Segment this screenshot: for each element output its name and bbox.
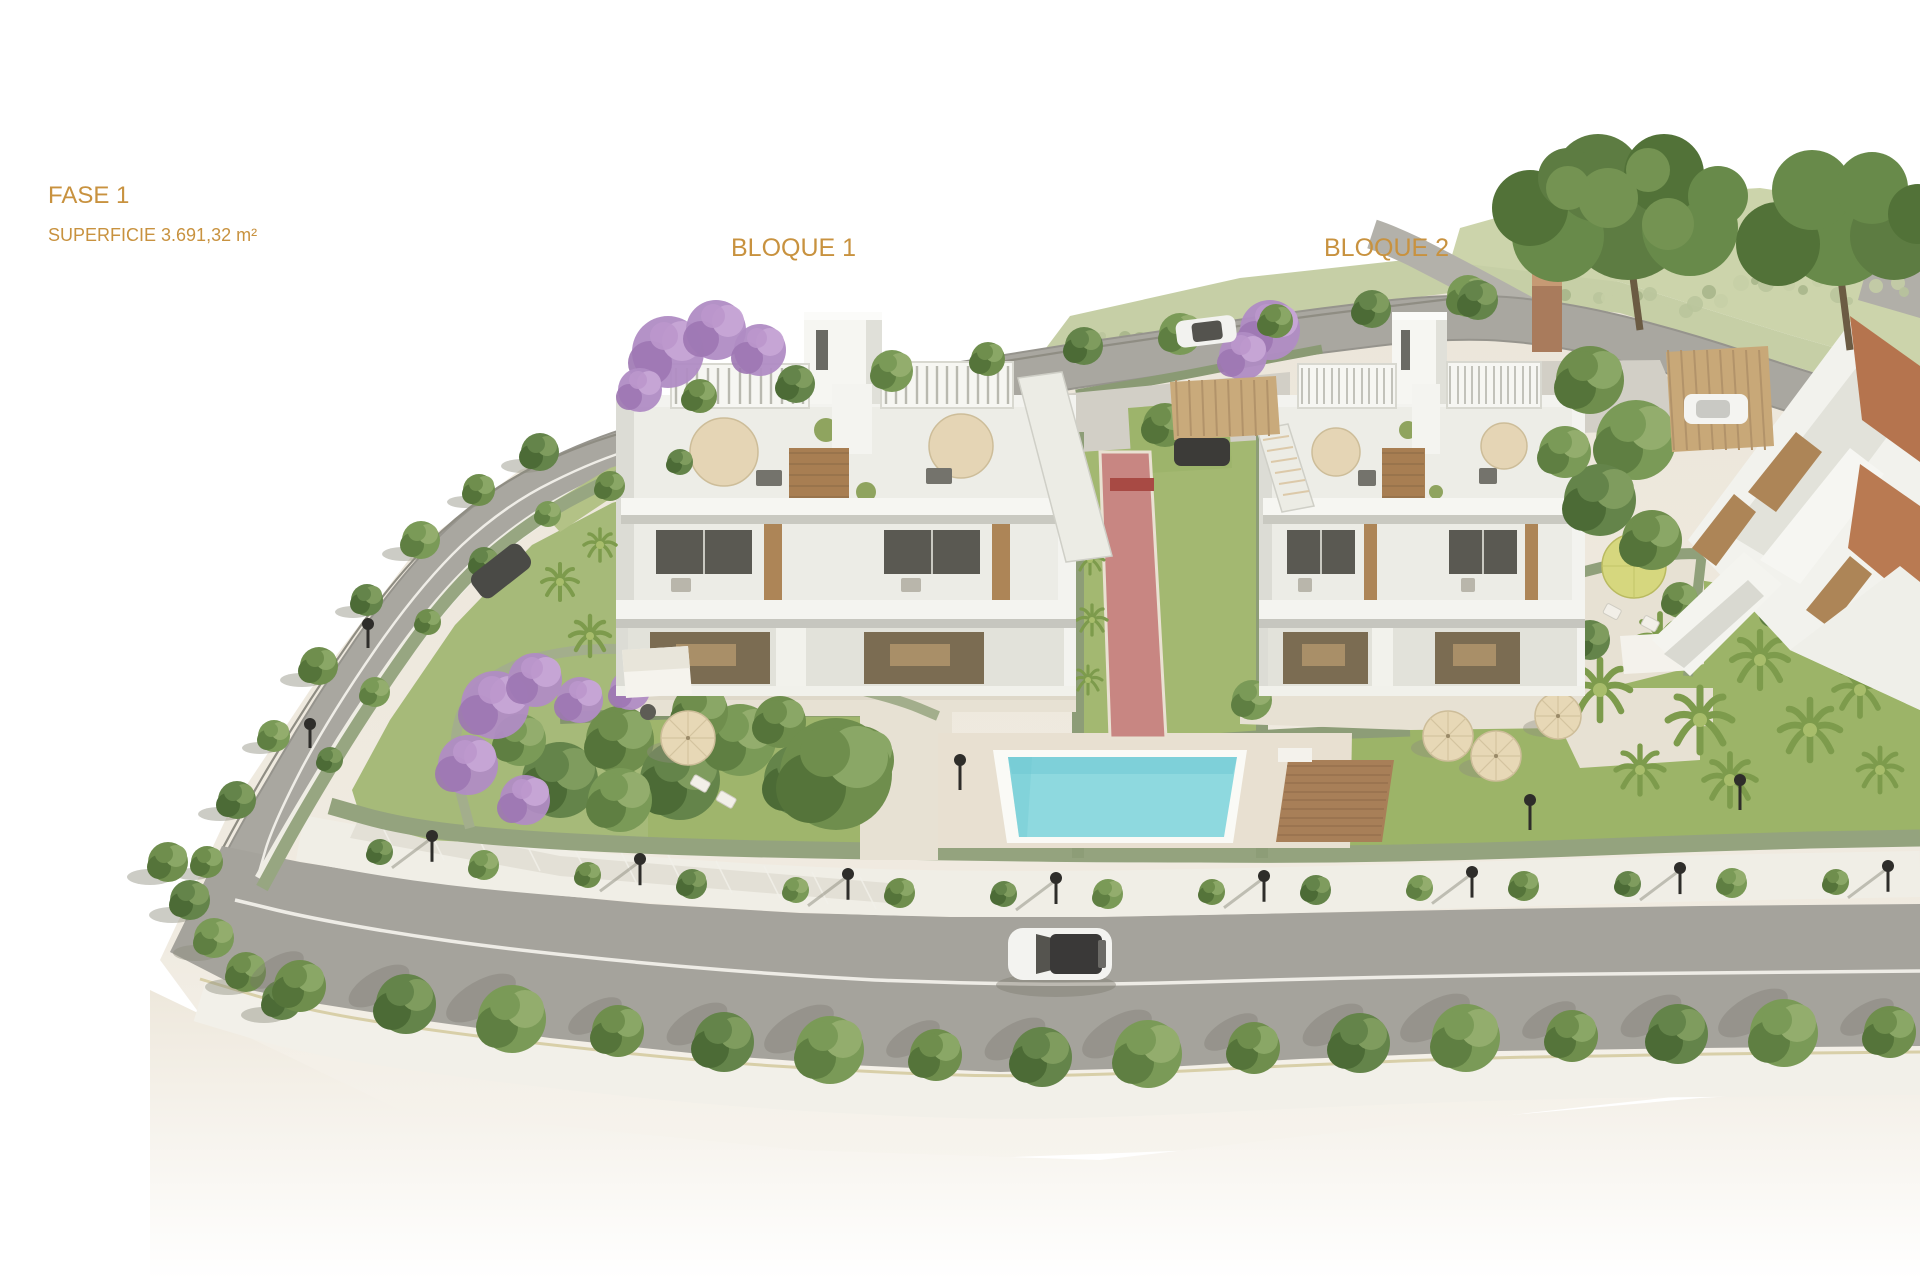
svg-text:FASE 1: FASE 1: [48, 182, 129, 209]
svg-text:BLOQUE 1: BLOQUE 1: [731, 234, 856, 262]
svg-text:BLOQUE 2: BLOQUE 2: [1324, 234, 1449, 262]
svg-text:SUPERFICIE 3.691,32 m²: SUPERFICIE 3.691,32 m²: [48, 225, 257, 245]
